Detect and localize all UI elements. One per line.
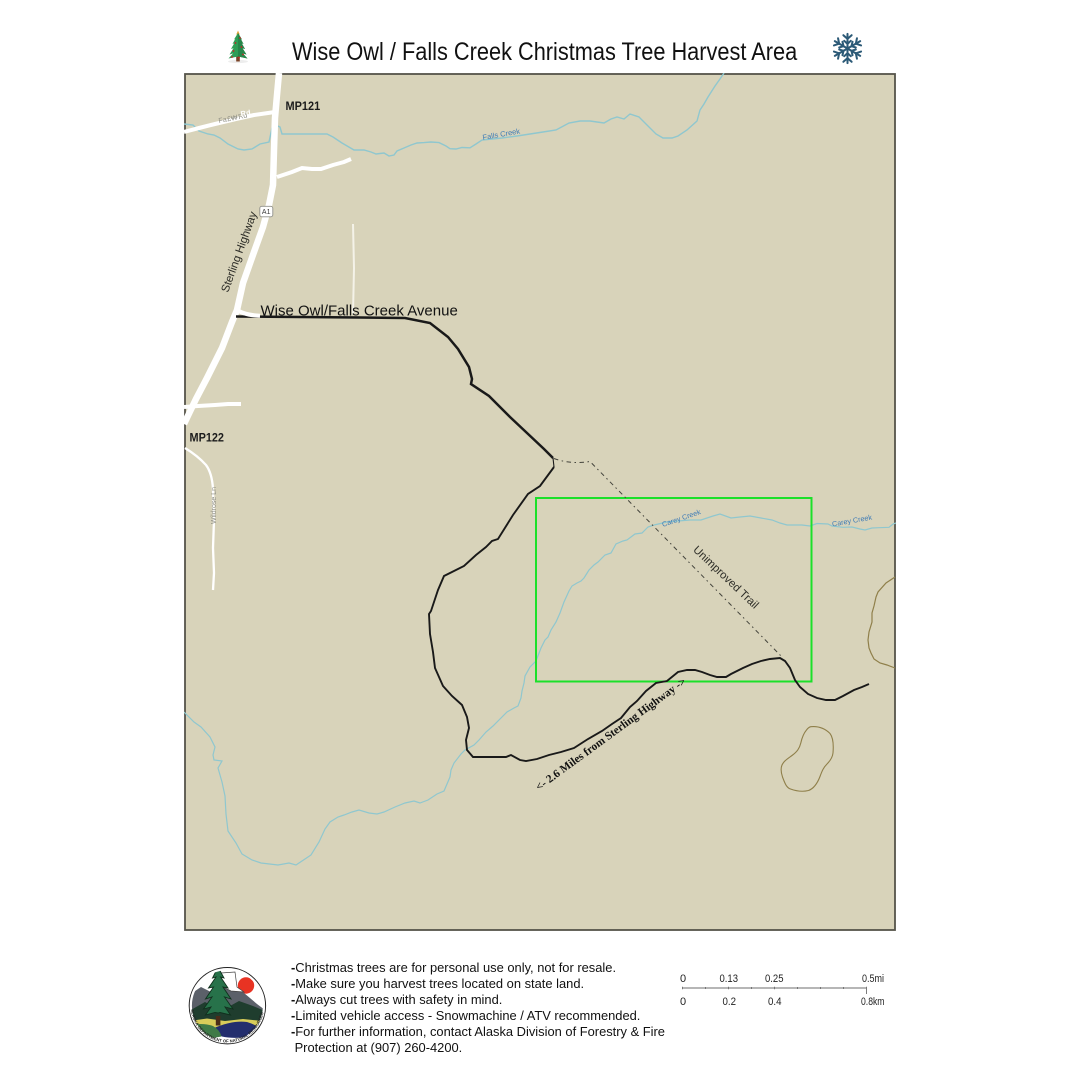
svg-text:0.5mi: 0.5mi <box>862 973 884 985</box>
svg-text:MP122: MP122 <box>190 431 225 445</box>
svg-text:0: 0 <box>680 996 686 1008</box>
svg-text:Wise Owl/Falls Creek Avenue: Wise Owl/Falls Creek Avenue <box>261 303 458 320</box>
svg-text:0.4: 0.4 <box>768 996 782 1008</box>
svg-text:0.8km: 0.8km <box>861 996 885 1008</box>
svg-text:0.13: 0.13 <box>720 973 739 985</box>
svg-text:Rd: Rd <box>240 108 252 119</box>
svg-text:Wildrose Ln: Wildrose Ln <box>211 487 218 524</box>
svg-text:MP121: MP121 <box>286 99 321 113</box>
svg-text:0.2: 0.2 <box>723 996 737 1008</box>
svg-text:A1: A1 <box>262 209 271 216</box>
svg-text:0: 0 <box>680 973 686 985</box>
svg-text:0.25: 0.25 <box>765 973 784 985</box>
